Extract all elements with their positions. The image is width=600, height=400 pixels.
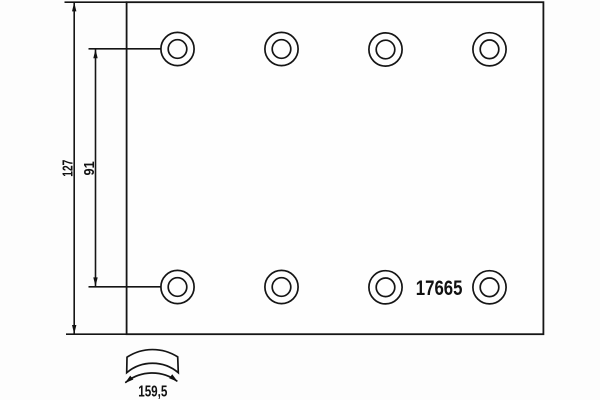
svg-text:159,5: 159,5 [138,382,167,400]
svg-text:127: 127 [58,160,76,177]
svg-text:91: 91 [80,161,97,175]
svg-text:17665: 17665 [416,277,463,300]
